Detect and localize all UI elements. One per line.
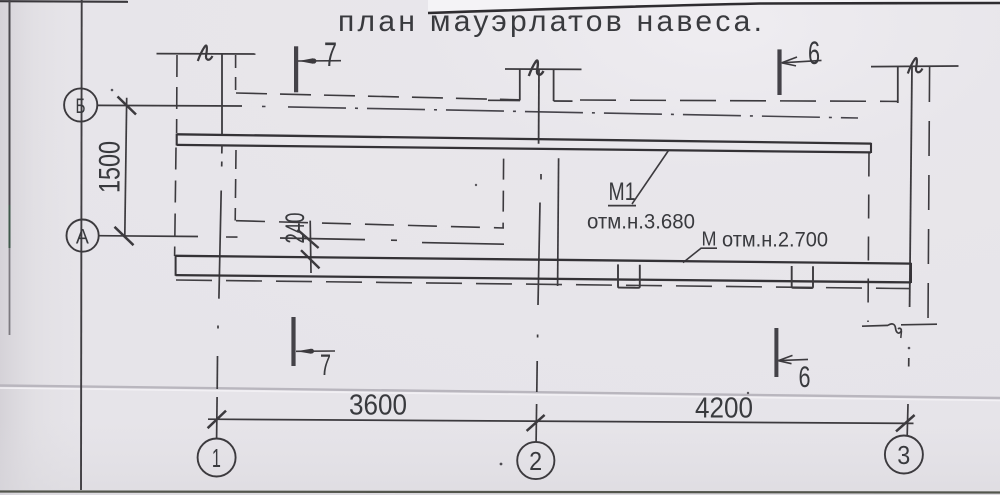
svg-text:М: М: [702, 229, 717, 251]
svg-text:А: А: [76, 226, 89, 249]
svg-text:план мауэрлатов навеса.: план мауэрлатов навеса.: [338, 5, 762, 38]
svg-text:6: 6: [808, 35, 820, 71]
svg-text:3600: 3600: [349, 390, 407, 422]
svg-text:М1: М1: [609, 178, 636, 206]
svg-text:4200: 4200: [695, 393, 753, 425]
svg-text:отм.н.2.700: отм.н.2.700: [722, 229, 828, 252]
svg-text:3: 3: [897, 440, 910, 470]
svg-text:6: 6: [799, 361, 811, 394]
svg-text:1: 1: [212, 443, 221, 473]
svg-text:240: 240: [280, 213, 310, 244]
svg-text:2: 2: [529, 446, 542, 476]
svg-text:Б: Б: [76, 95, 86, 118]
svg-text:1500: 1500: [94, 141, 127, 193]
svg-text:7: 7: [320, 349, 331, 382]
svg-text:7: 7: [324, 36, 337, 74]
svg-text:отм.н.3.680: отм.н.3.680: [587, 210, 695, 234]
